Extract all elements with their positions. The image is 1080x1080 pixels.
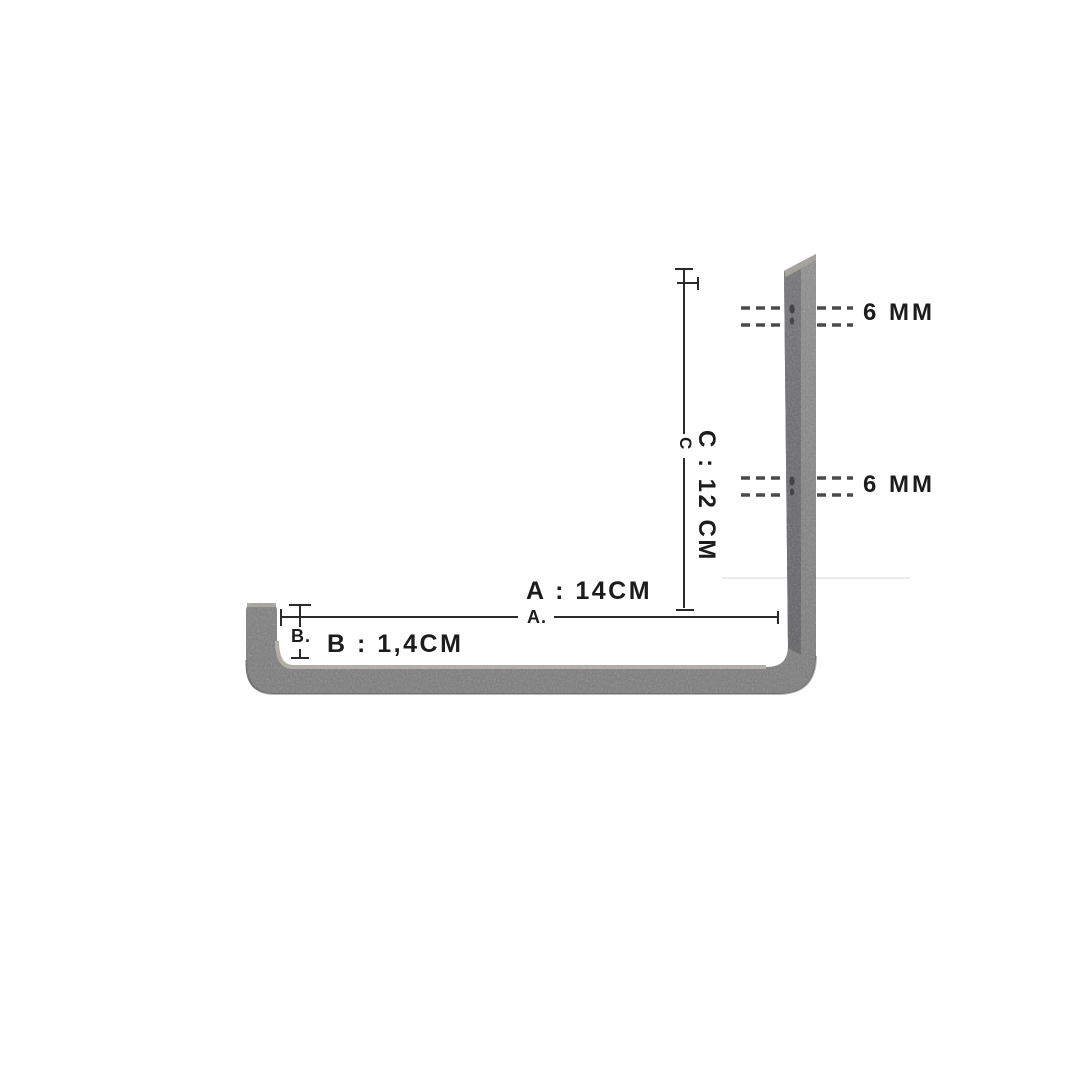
bracket-body (246, 254, 816, 694)
dimension-label-c: C : 12 CM (694, 430, 719, 562)
screw-hole-top-upper (789, 304, 794, 313)
hole-diameter-label-top: 6 MM (863, 300, 935, 325)
screw-hole-top-lower (790, 317, 794, 324)
screw-hole-bottom-upper (789, 476, 794, 485)
dimension-tick-label-a: A. (527, 608, 547, 627)
hole-diameter-label-bottom: 6 MM (863, 472, 935, 497)
dimension-label-a: A : 14CM (526, 578, 652, 604)
product-dimension-diagram: 6 MM 6 MM C : 12 CM C A : 14CM A. B : 1,… (0, 0, 1080, 1080)
bracket-diagram-graphic (0, 0, 1080, 1080)
bracket-silhouette (246, 254, 816, 694)
bracket-texture (246, 254, 816, 694)
dimension-tick-label-c: C (676, 437, 694, 449)
dimension-label-b: B : 1,4CM (327, 631, 463, 657)
screw-hole-bottom-lower (790, 488, 794, 495)
dimension-tick-label-b: B. (291, 627, 311, 646)
